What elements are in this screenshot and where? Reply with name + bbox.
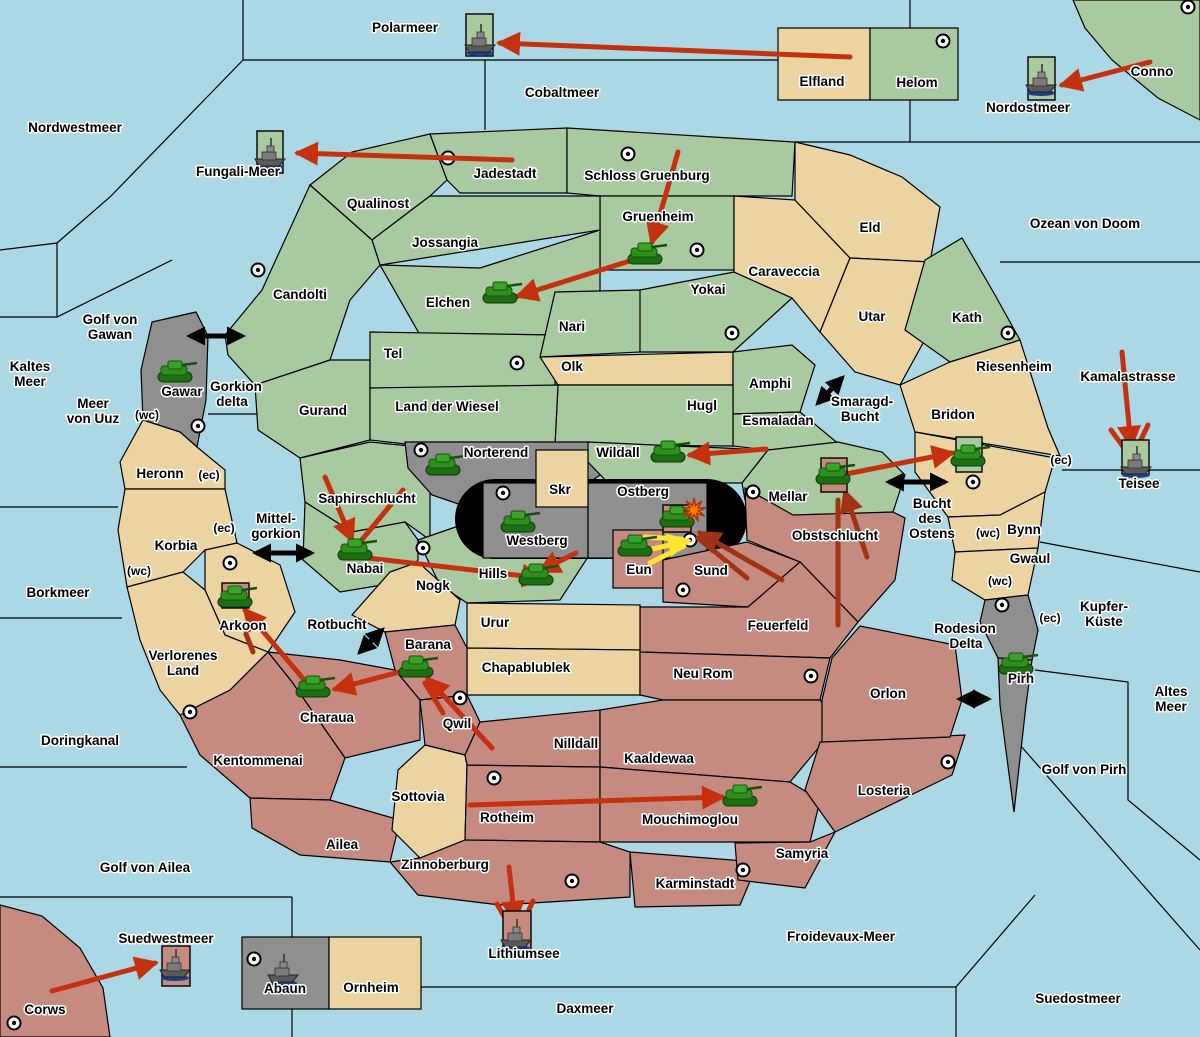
- supply-center-dot: [726, 327, 739, 340]
- label-caraveccia: Caraveccia: [748, 264, 820, 279]
- label-wc: (wc): [135, 408, 159, 422]
- label-ostberg: Ostberg: [617, 484, 669, 499]
- supply-center-dot: [511, 357, 524, 370]
- label-rotbucht: Rotbucht: [307, 617, 367, 632]
- label-nabai: Nabai: [347, 561, 384, 576]
- label-gwaul: Gwaul: [1010, 551, 1051, 566]
- label-orlon: Orlon: [870, 686, 906, 701]
- label-westberg: Westberg: [506, 533, 567, 548]
- label-amphi: Amphi: [749, 376, 791, 391]
- label-kamalastrasse: Kamalastrasse: [1080, 369, 1176, 384]
- label-elchen: Elchen: [426, 295, 470, 310]
- label-sund: Sund: [694, 563, 728, 578]
- label-rodesion: Rodesion: [934, 621, 996, 636]
- label-mouchimoglou: Mouchimoglou: [642, 812, 738, 827]
- label-nogk: Nogk: [416, 578, 450, 593]
- label-k-ste: Küste: [1085, 614, 1123, 629]
- label-bridon: Bridon: [931, 407, 975, 422]
- label-chapablublek: Chapablublek: [482, 660, 571, 675]
- label-jossangia: Jossangia: [412, 235, 479, 250]
- label-wc: (wc): [988, 574, 1012, 588]
- label-ec: (ec): [198, 468, 219, 482]
- supply-center-dot: [488, 772, 501, 785]
- label-golf-von-pirh: Golf von Pirh: [1042, 762, 1127, 777]
- label-smaragd: Smaragd-: [831, 394, 893, 409]
- label-teisee: Teisee: [1118, 476, 1160, 491]
- label-norterend: Norterend: [464, 445, 529, 460]
- label-kupfer: Kupfer-: [1080, 599, 1128, 614]
- label-kentommenai: Kentommenai: [213, 753, 302, 768]
- label-kath: Kath: [952, 310, 982, 325]
- label-fungali-meer: Fungali-Meer: [196, 164, 281, 179]
- label-esmaladan: Esmaladan: [742, 413, 813, 428]
- label-froidevaux-meer: Froidevaux-Meer: [787, 929, 896, 944]
- label-delta: Delta: [949, 636, 983, 651]
- supply-center-dot: [415, 444, 428, 457]
- label-delta: delta: [216, 394, 248, 409]
- supply-center-dot: [184, 706, 197, 719]
- supply-center-dot: [192, 420, 205, 433]
- label-land-der-wiesel: Land der Wiesel: [395, 399, 498, 414]
- label-tel: Tel: [384, 346, 403, 361]
- supply-center-dot: [8, 1017, 21, 1030]
- label-kaaldewaa: Kaaldewaa: [624, 751, 694, 766]
- label-polarmeer: Polarmeer: [372, 20, 439, 35]
- label-gawan: Gawan: [88, 327, 132, 342]
- label-cobaltmeer: Cobaltmeer: [525, 85, 600, 100]
- label-wc: (wc): [127, 564, 151, 578]
- label-land: Land: [167, 663, 199, 678]
- fleet-suedwestmeer[interactable]: [160, 946, 190, 986]
- supply-center-dot: [691, 244, 704, 257]
- region-land-der-wiesel[interactable]: [370, 385, 558, 445]
- label-olk: Olk: [561, 359, 583, 374]
- label-heronn: Heronn: [136, 466, 183, 481]
- label-daxmeer: Daxmeer: [556, 1001, 614, 1016]
- region-hugl[interactable]: [555, 385, 733, 446]
- label-meer: Meer: [77, 396, 109, 411]
- label-karminstadt: Karminstadt: [656, 876, 735, 891]
- map-canvas: PolarmeerNordwestmeerCobaltmeerFungali-M…: [0, 0, 1200, 1037]
- supply-center-dot: [747, 486, 760, 499]
- supply-center-dot: [248, 953, 261, 966]
- label-meer: Meer: [14, 374, 46, 389]
- label-yokai: Yokai: [690, 282, 725, 297]
- label-golf-von: Golf von: [83, 312, 138, 327]
- region-gruenheim[interactable]: [600, 196, 734, 270]
- label-von-uuz: von Uuz: [67, 411, 120, 426]
- supply-center-dot: [967, 476, 980, 489]
- label-gawar: Gawar: [161, 384, 203, 399]
- label-zinnoberburg: Zinnoberburg: [401, 857, 489, 872]
- label-gorkion: gorkion: [251, 526, 301, 541]
- supply-center-dot: [996, 599, 1009, 612]
- label-mellar: Mellar: [768, 489, 808, 504]
- label-candolti: Candolti: [273, 287, 327, 302]
- label-saphirschlucht: Saphirschlucht: [318, 491, 416, 506]
- supply-center-dot: [417, 542, 430, 555]
- label-ailea: Ailea: [326, 837, 359, 852]
- label-helom: Helom: [896, 75, 937, 90]
- label-nordostmeer: Nordostmeer: [986, 100, 1071, 115]
- region-elfland[interactable]: [778, 28, 870, 100]
- label-gruenheim: Gruenheim: [622, 209, 693, 224]
- label-bynn: Bynn: [1007, 522, 1041, 537]
- label-obstschlucht: Obstschlucht: [792, 528, 879, 543]
- label-arkoon: Arkoon: [219, 618, 266, 633]
- label-verlorenes: Verlorenes: [148, 648, 217, 663]
- label-doringkanal: Doringkanal: [41, 733, 119, 748]
- label-kaltes: Kaltes: [10, 359, 51, 374]
- label-abaun: Abaun: [264, 981, 306, 996]
- supply-center-dot: [454, 692, 467, 705]
- supply-center-dot: [737, 864, 750, 877]
- label-des: des: [918, 511, 941, 526]
- label-charaua: Charaua: [300, 710, 355, 725]
- label-hugl: Hugl: [687, 398, 717, 413]
- label-rotheim: Rotheim: [480, 810, 534, 825]
- label-elfland: Elfland: [799, 74, 844, 89]
- supply-center-dot: [224, 557, 237, 570]
- supply-center-dot: [252, 264, 265, 277]
- label-lithiumsee: Lithiumsee: [488, 946, 560, 961]
- label-riesenheim: Riesenheim: [976, 359, 1052, 374]
- label-nari: Nari: [559, 319, 585, 334]
- label-suedwestmeer: Suedwestmeer: [118, 931, 214, 946]
- supply-center-dot: [1182, 1, 1195, 14]
- fleet-nordostmeer[interactable]: [1026, 57, 1056, 100]
- supply-center-dot: [622, 148, 635, 161]
- label-eun: Eun: [626, 562, 652, 577]
- label-ozean-von-doom: Ozean von Doom: [1030, 216, 1140, 231]
- label-neu-rom: Neu Rom: [673, 666, 732, 681]
- fleet-lithiumsee[interactable]: [501, 911, 531, 951]
- label-wc: (wc): [976, 526, 1000, 540]
- supply-center-dot: [497, 487, 510, 500]
- label-schloss-gruenburg: Schloss Gruenburg: [584, 168, 709, 183]
- label-qualinost: Qualinost: [347, 196, 410, 211]
- label-bucht: Bucht: [841, 409, 880, 424]
- label-qwil: Qwil: [443, 716, 472, 731]
- label-korbia: Korbia: [155, 538, 198, 553]
- supply-center-dot: [1002, 327, 1015, 340]
- label-samyria: Samyria: [776, 846, 829, 861]
- label-ostens: Ostens: [909, 526, 955, 541]
- label-pirh: Pirh: [1008, 671, 1034, 686]
- label-losteria: Losteria: [858, 783, 911, 798]
- label-ornheim: Ornheim: [343, 980, 399, 995]
- fleet-polarmeer[interactable]: [465, 14, 495, 56]
- label-conno: Conno: [1131, 64, 1174, 79]
- fleet-teisee[interactable]: [1121, 440, 1151, 478]
- region-neu-rom[interactable]: [640, 652, 830, 700]
- label-ec: (ec): [213, 521, 234, 535]
- label-bucht: Bucht: [913, 496, 952, 511]
- label-golf-von-ailea: Golf von Ailea: [100, 860, 191, 875]
- label-gurand: Gurand: [299, 403, 347, 418]
- label-skr: Skr: [549, 482, 572, 497]
- label-nordwestmeer: Nordwestmeer: [28, 120, 123, 135]
- game-map: PolarmeerNordwestmeerCobaltmeerFungali-M…: [0, 0, 1200, 1037]
- supply-center-dot: [805, 670, 818, 683]
- label-ec: (ec): [1039, 611, 1060, 625]
- label-borkmeer: Borkmeer: [26, 585, 90, 600]
- label-suedostmeer: Suedostmeer: [1035, 991, 1121, 1006]
- label-urur: Urur: [481, 615, 510, 630]
- label-ec: (ec): [1050, 453, 1071, 467]
- region-skr[interactable]: [536, 450, 588, 507]
- label-sottovia: Sottovia: [391, 789, 445, 804]
- supply-center-dot: [942, 756, 955, 769]
- label-utar: Utar: [858, 309, 886, 324]
- label-hills: Hills: [479, 566, 508, 581]
- label-feuerfeld: Feuerfeld: [748, 618, 809, 633]
- label-eld: Eld: [859, 220, 880, 235]
- label-mittel: Mittel-: [256, 511, 296, 526]
- supply-center-dot: [566, 875, 579, 888]
- label-wildall: Wildall: [596, 445, 639, 460]
- label-meer: Meer: [1155, 699, 1187, 714]
- region-ornheim[interactable]: [329, 937, 421, 1009]
- label-gorkion: Gorkion: [210, 379, 262, 394]
- label-nilldall: Nilldall: [554, 736, 598, 751]
- label-corws: Corws: [24, 1002, 65, 1017]
- label-barana: Barana: [405, 637, 451, 652]
- label-jadestadt: Jadestadt: [473, 166, 537, 181]
- supply-center-dot: [677, 584, 690, 597]
- supply-center-dot: [937, 35, 950, 48]
- label-altes: Altes: [1154, 684, 1187, 699]
